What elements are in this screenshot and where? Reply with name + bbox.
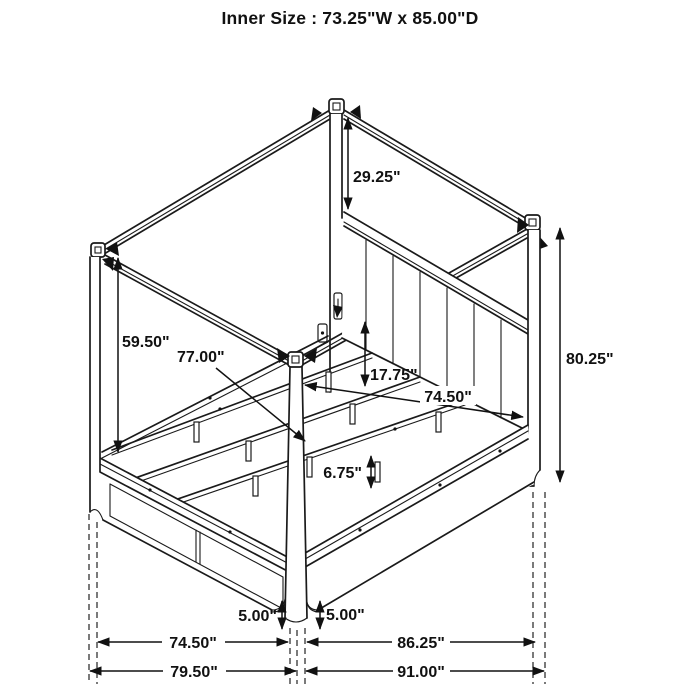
dim-label-right-foot: 5.00" (326, 607, 365, 624)
slat-support-legs (194, 372, 441, 496)
canopy-corner-blocks (91, 99, 540, 257)
product-dimension-diagram: Inner Size : 73.25"W x 85.00"D (0, 0, 700, 700)
dim-label-side-span: 86.25" (397, 635, 445, 652)
dim-label-post-height: 80.25" (566, 351, 614, 368)
dim-label-slat-length: 77.00" (177, 349, 225, 366)
dim-label-clearance-height: 59.50" (122, 334, 170, 351)
dim-label-overall-depth: 91.00" (397, 664, 445, 681)
assembly-arrow-icons (102, 105, 548, 271)
dim-label-slat-support-height: 6.75" (323, 465, 362, 482)
dim-label-left-foot: 5.00" (238, 608, 277, 625)
canopy-bed-line-drawing: 29.25" 59.50" 77.00" 17.75" 74.50" 6.75"… (0, 0, 700, 700)
dim-label-footboard-span: 74.50" (169, 635, 217, 652)
footboard-storage (100, 458, 293, 614)
dim-label-canopy-height: 29.25" (353, 169, 401, 186)
dim-label-rail-gap: 17.75" (370, 367, 418, 384)
side-rail (293, 425, 534, 614)
left-post (90, 257, 103, 520)
dim-label-overall-width: 79.50" (170, 664, 218, 681)
dim-label-inner-length: 74.50" (424, 389, 472, 406)
front-corner-block (288, 352, 303, 367)
